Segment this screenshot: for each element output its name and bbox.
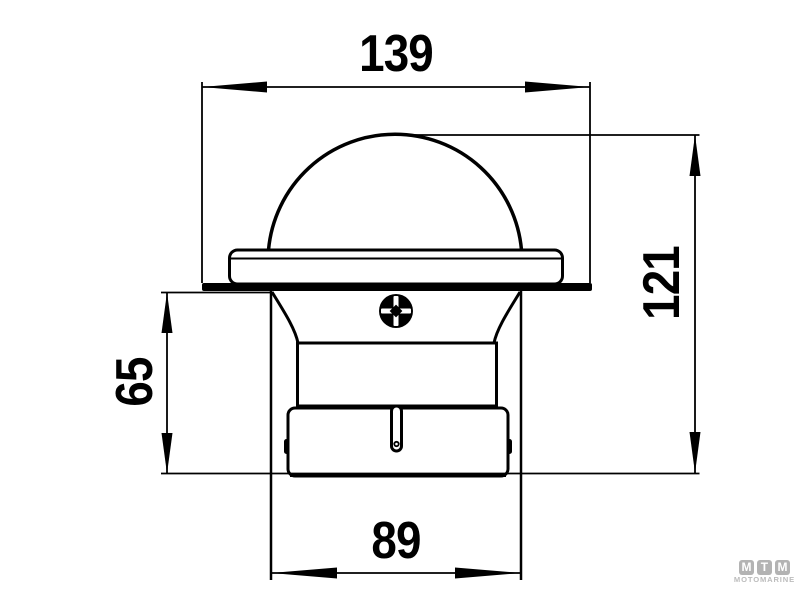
dimension-65-graphics <box>161 293 271 474</box>
compass-bowl-body <box>298 343 497 406</box>
watermark-letter-badge: M <box>775 560 790 575</box>
arrowhead-down-icon <box>690 432 701 473</box>
bracket-knob-left <box>284 439 289 454</box>
screw-head-icon <box>379 294 413 328</box>
arrowhead-right-icon <box>455 568 521 579</box>
arrowhead-right-icon <box>525 82 590 93</box>
technical-drawing-canvas: 139 121 65 89 M T M MOTOMARINE <box>0 0 800 600</box>
dimension-label-recess-depth: 65 <box>109 357 161 406</box>
mtm-motomarine-watermark: M T M MOTOMARINE <box>734 560 795 584</box>
dimension-label-top-width: 139 <box>359 28 433 80</box>
bowl-curve-right <box>494 292 520 343</box>
arrowhead-up-icon <box>690 135 701 176</box>
slot-pin-hole <box>394 442 398 446</box>
bracket-knob-right <box>507 439 512 454</box>
bowl-curve-left <box>272 292 298 343</box>
dimension-lines <box>161 82 701 579</box>
mounting-panel-plate <box>202 283 592 291</box>
watermark-letter-badges: M T M <box>739 560 790 575</box>
arrowhead-down-icon <box>162 433 173 474</box>
bezel-flange <box>230 250 563 284</box>
watermark-letter-badge: M <box>739 560 754 575</box>
dimension-label-overall-height: 121 <box>636 246 688 320</box>
watermark-letter-badge: T <box>757 560 772 575</box>
arrowhead-left-icon <box>271 568 337 579</box>
compass-dome-arc <box>269 134 522 250</box>
dimension-label-body-width: 89 <box>371 515 420 567</box>
watermark-brand-name: MOTOMARINE <box>734 576 795 584</box>
arrowhead-up-icon <box>162 293 173 334</box>
arrowhead-left-icon <box>202 82 267 93</box>
